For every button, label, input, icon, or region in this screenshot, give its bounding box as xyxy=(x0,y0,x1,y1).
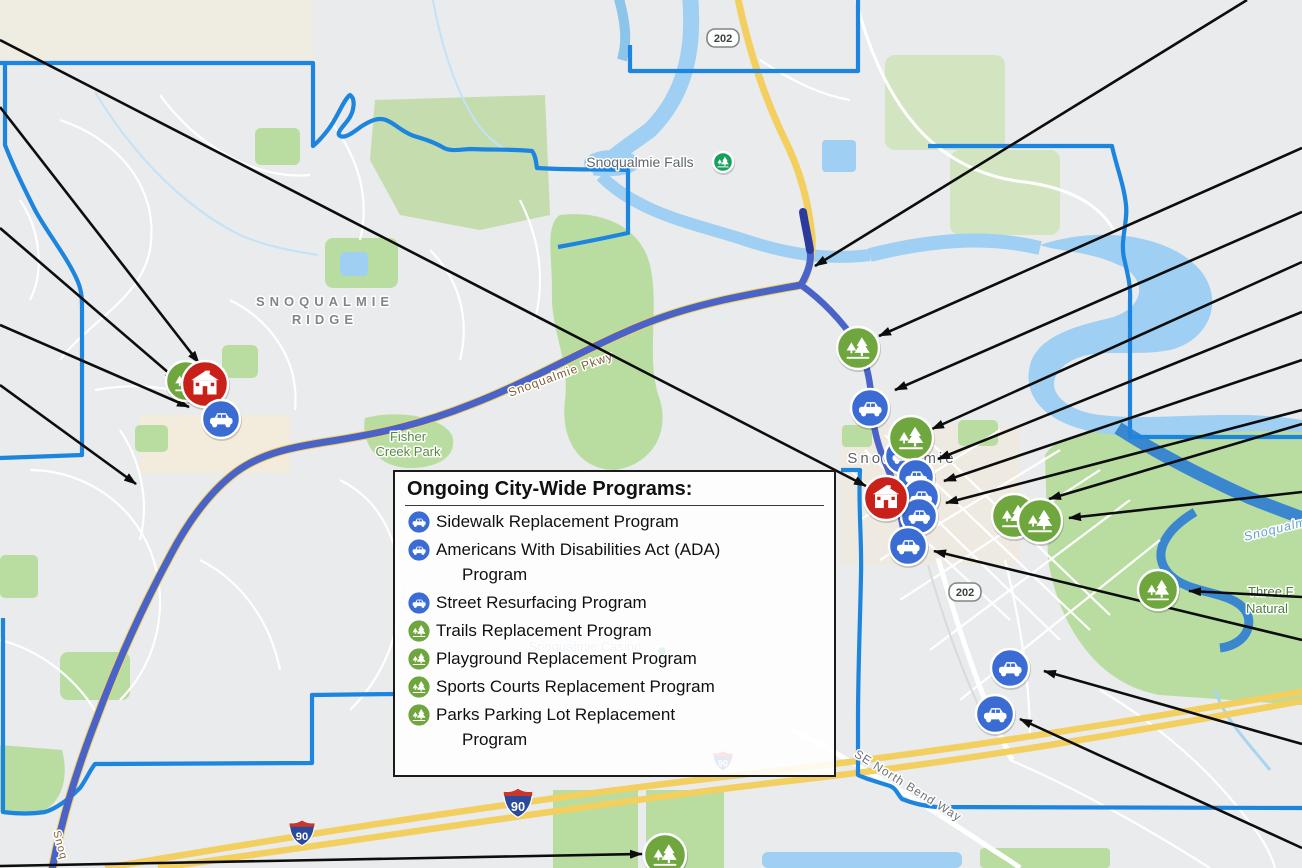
map-label-fisher-line1: Fisher xyxy=(390,429,427,444)
legend-item: Trails Replacement Program xyxy=(407,618,824,643)
legend-item-label: Street Resurfacing Program xyxy=(436,590,647,615)
map-label-snoqualmie-falls: Snoqualmie Falls xyxy=(586,154,693,170)
park-program-icon xyxy=(407,647,431,671)
legend-item-label: Trails Replacement Program xyxy=(436,618,652,643)
legend-item-label: Americans With Disabilities Act (ADA)Pro… xyxy=(436,537,720,587)
legend-item: Sports Courts Replacement Program xyxy=(407,674,824,699)
legend-item-label: Sidewalk Replacement Program xyxy=(436,509,679,534)
car-marker[interactable] xyxy=(990,649,1031,690)
park-program-icon xyxy=(407,619,431,643)
legend-list: Sidewalk Replacement Program Americans W… xyxy=(405,509,824,752)
car-marker[interactable] xyxy=(888,527,929,568)
legend-item-label-line2: Program xyxy=(462,562,720,587)
car-program-icon xyxy=(407,591,431,615)
legend-item: Playground Replacement Program xyxy=(407,646,824,671)
map-label-three-forks-line2: Natural xyxy=(1246,601,1288,616)
legend-item-label: Parks Parking Lot ReplacementProgram xyxy=(436,702,675,752)
legend-item: Parks Parking Lot ReplacementProgram xyxy=(407,702,824,752)
map-label-ridge-line2: RIDGE xyxy=(292,312,358,327)
svg-text:202: 202 xyxy=(714,33,732,45)
poi-marker[interactable] xyxy=(712,152,735,175)
legend-item: Americans With Disabilities Act (ADA)Pro… xyxy=(407,537,824,587)
park-marker[interactable] xyxy=(836,327,881,372)
highway-202-shield: 202 xyxy=(707,29,739,47)
park-program-icon xyxy=(407,703,431,727)
legend-item: Sidewalk Replacement Program xyxy=(407,509,824,534)
svg-text:90: 90 xyxy=(296,831,308,843)
legend-title: Ongoing City-Wide Programs: xyxy=(405,476,824,506)
svg-text:90: 90 xyxy=(511,799,525,814)
legend-box: Ongoing City-Wide Programs: Sidewalk Rep… xyxy=(393,470,836,777)
legend-item-label: Sports Courts Replacement Program xyxy=(436,674,715,699)
car-marker[interactable] xyxy=(975,695,1016,736)
map-screenshot: SNOQUALMIERIDGESnoqualmie FallsFisherCre… xyxy=(0,0,1302,868)
car-program-icon xyxy=(407,510,431,534)
car-program-icon xyxy=(407,538,431,562)
car-marker[interactable] xyxy=(850,389,891,430)
school-marker[interactable] xyxy=(863,476,910,523)
car-marker[interactable] xyxy=(201,400,242,441)
park-marker[interactable] xyxy=(888,416,935,463)
svg-text:202: 202 xyxy=(956,587,974,599)
map-label-ridge-line1: SNOQUALMIE xyxy=(256,294,394,309)
legend-item-label-line2: Program xyxy=(462,727,675,752)
highway-202-shield: 202 xyxy=(949,583,981,601)
legend-item: Street Resurfacing Program xyxy=(407,590,824,615)
park-marker[interactable] xyxy=(1017,499,1064,546)
park-marker[interactable] xyxy=(1137,570,1180,613)
legend-item-label: Playground Replacement Program xyxy=(436,646,697,671)
map-label-fisher-line2: Creek Park xyxy=(375,444,441,459)
park-program-icon xyxy=(407,675,431,699)
